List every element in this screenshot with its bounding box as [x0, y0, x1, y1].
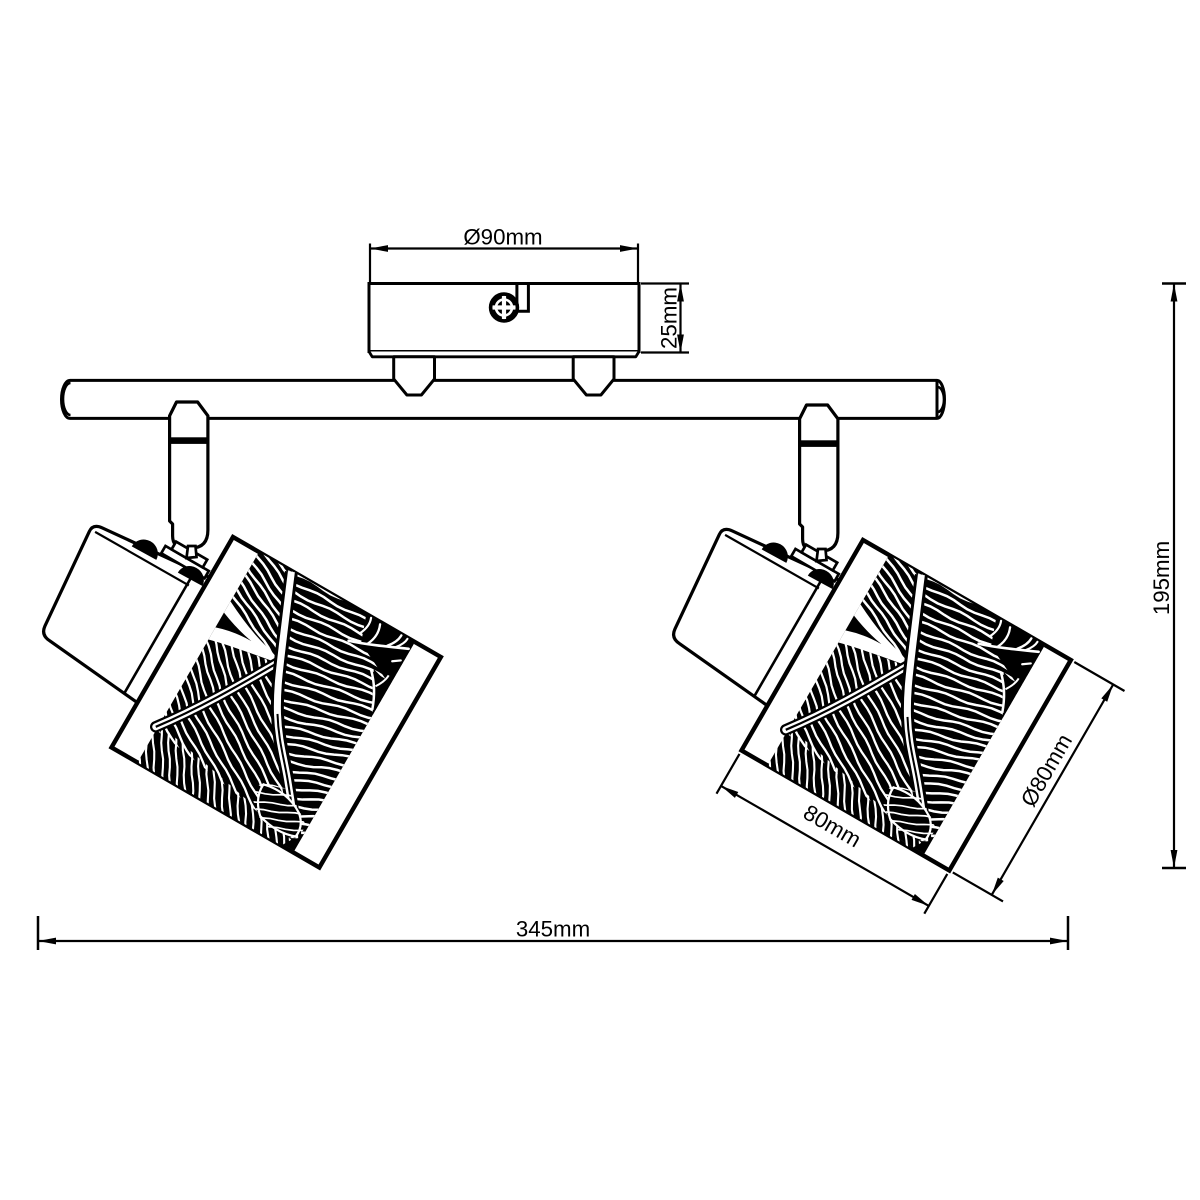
svg-text:345mm: 345mm: [516, 917, 590, 942]
svg-text:Ø90mm: Ø90mm: [463, 225, 542, 250]
svg-text:195mm: 195mm: [1149, 541, 1174, 615]
svg-text:25mm: 25mm: [657, 287, 682, 349]
